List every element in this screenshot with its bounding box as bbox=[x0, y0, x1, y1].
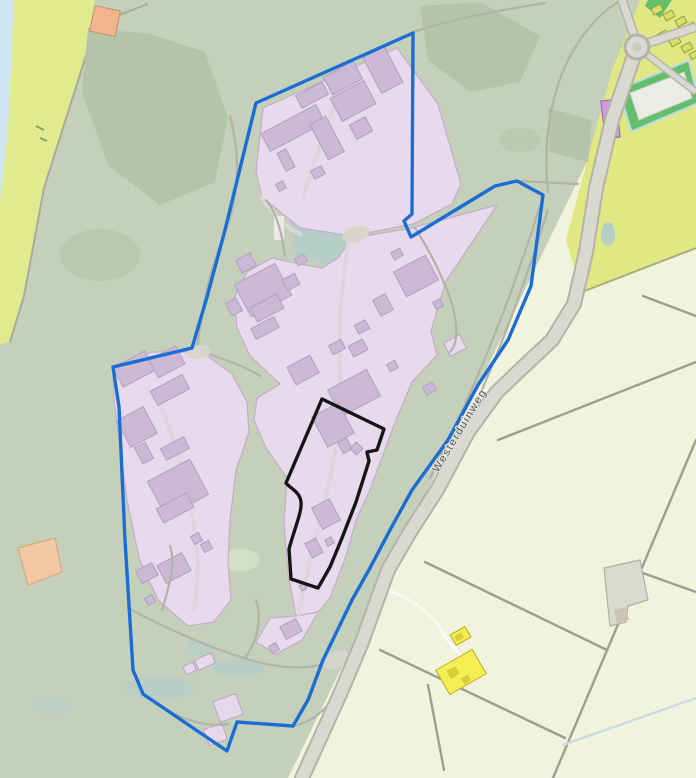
map-viewport[interactable]: Westerduinweg bbox=[0, 0, 696, 778]
building bbox=[90, 6, 121, 37]
map-canvas[interactable]: Westerduinweg bbox=[0, 0, 696, 778]
salmon-building bbox=[90, 6, 121, 37]
roundabout bbox=[625, 35, 649, 59]
